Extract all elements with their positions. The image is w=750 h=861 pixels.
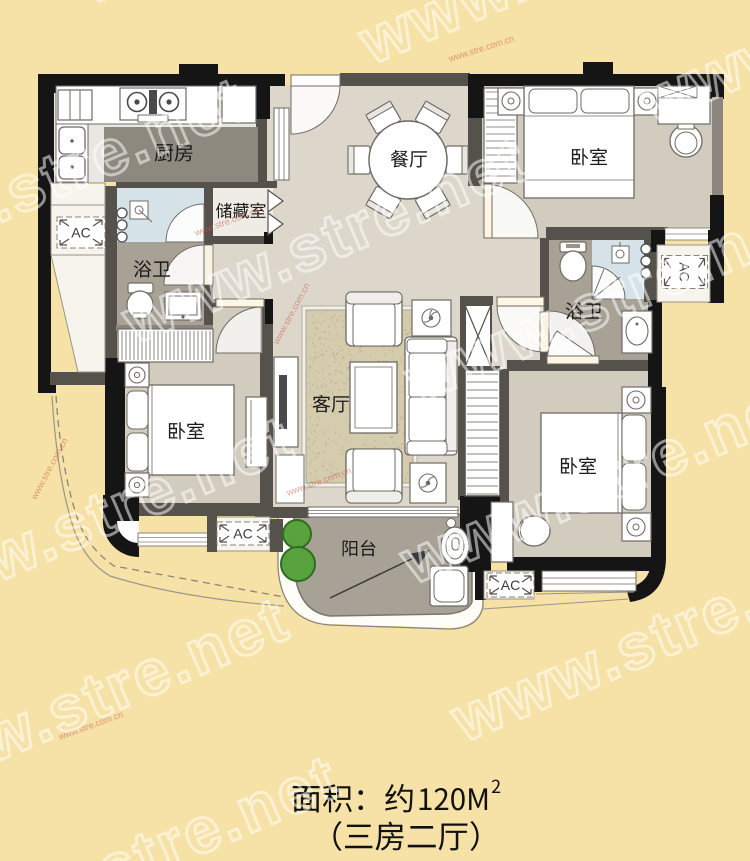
svg-text:AC: AC (233, 526, 252, 542)
svg-text:AC: AC (501, 577, 520, 593)
svg-text:AC: AC (71, 225, 90, 241)
